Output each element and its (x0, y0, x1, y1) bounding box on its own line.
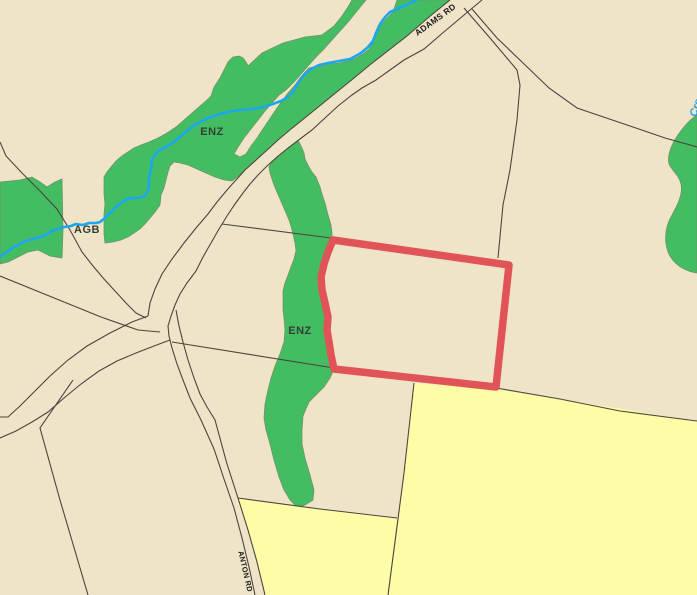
svg-text:AGB: AGB (74, 224, 100, 236)
svg-text:ENZ: ENZ (200, 126, 224, 138)
svg-text:ENZ: ENZ (288, 325, 312, 337)
